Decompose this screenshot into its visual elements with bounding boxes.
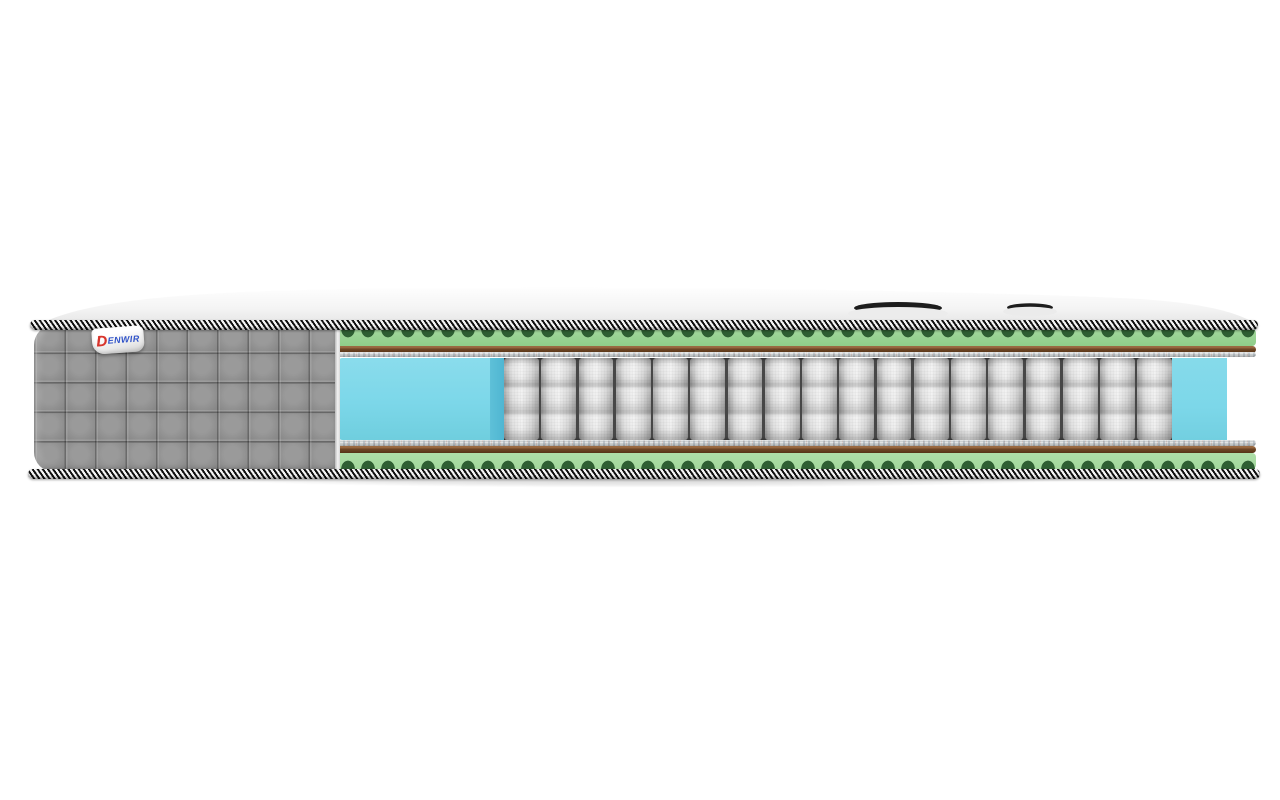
spring-core-row [338,358,1256,440]
left-foam-block-side [490,358,504,440]
right-foam-block [1172,358,1227,440]
top-foam-wave-layer [338,329,1256,346]
spring-pocket [1026,358,1061,440]
floor-shadow [30,476,1258,500]
fabric-cut-edge [335,327,340,469]
spring-pocket [839,358,874,440]
top-piping-braid [30,320,1258,330]
spring-pocket [914,358,949,440]
spring-pocket [951,358,986,440]
spring-pocket [988,358,1023,440]
spring-pocket [877,358,912,440]
bottom-felt-brown-layer [338,446,1256,453]
spring-pocket [616,358,651,440]
brand-tag: D ENWIR [91,325,145,355]
spring-pocket [579,358,614,440]
quilted-side-panel [34,325,340,472]
left-foam-block-front [339,358,490,440]
spring-pocket [541,358,576,440]
spring-pocket [728,358,763,440]
spring-row [504,358,1172,440]
spring-pocket [653,358,688,440]
spring-pocket [802,358,837,440]
product-photo-stage: D ENWIR [0,0,1280,800]
bottom-foam-wave-layer [338,453,1256,469]
handle-icon [1003,303,1057,316]
spring-pocket [690,358,725,440]
bottom-piping-braid [28,469,1260,479]
brand-logo-text: ENWIR [107,334,140,345]
brand-logo-d: D [96,333,108,349]
spring-pocket [1137,358,1172,440]
spring-pocket [1100,358,1135,440]
spring-pocket [765,358,800,440]
spring-pocket [504,358,539,440]
spring-pocket [1063,358,1098,440]
handle-icon [848,302,948,320]
top-felt-pad-layer [338,352,1256,357]
